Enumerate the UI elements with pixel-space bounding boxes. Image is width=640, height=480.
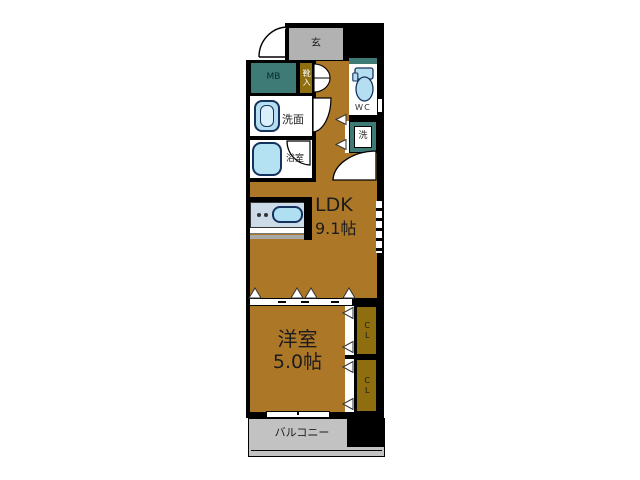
bathroom-label: 浴室 [286, 146, 304, 165]
floor-plan: 玄 MB 靴入 ＷＣ 洗 洗面 [0, 0, 640, 480]
washroom-label: 洗面 [282, 108, 304, 127]
partition-door-marker-icon [291, 288, 303, 298]
ldk-window [376, 201, 382, 253]
shoe-cabinet-door-icon [313, 62, 331, 94]
entrance-label: 玄 [311, 39, 321, 50]
kitchen-counter [250, 202, 306, 228]
counter-shadow [250, 235, 306, 239]
entrance-door-icon [257, 25, 289, 59]
balcony-label: バルコニー [252, 425, 352, 441]
meter-box-label: MB [267, 73, 281, 82]
toilet-icon [352, 66, 376, 104]
counter-edge [250, 228, 306, 234]
partition-door-marker-icon [305, 288, 317, 298]
balcony-window [266, 411, 330, 418]
kitchen-wall-right [304, 197, 312, 240]
entrance-room: 玄 [288, 27, 344, 61]
shoe-cabinet-label: 靴入 [302, 69, 310, 87]
laundry-door-marker-icon [336, 114, 347, 125]
western-room-size-label: 5.0帖 [250, 351, 345, 375]
closet-upper: CL [356, 306, 377, 355]
washroom-door-icon [312, 97, 332, 133]
closet-upper-label: CL [362, 321, 370, 341]
balcony-railing-line [251, 450, 382, 451]
kitchen-sink-icon [272, 206, 303, 223]
meter-box: MB [250, 62, 297, 94]
closet-lower-label: CL [362, 376, 370, 396]
western-room-label: 洋室 [250, 326, 345, 352]
partition-door-marker-icon [343, 288, 355, 298]
closet-door-marker-icon [343, 398, 354, 410]
bathtub-icon [252, 142, 282, 176]
stove-burner-icon [257, 213, 261, 217]
washing-machine-icon: 洗 [354, 126, 372, 148]
ldk-size-label: 9.1帖 [315, 219, 356, 238]
pillar [347, 416, 384, 447]
ldk-door-icon [331, 149, 377, 182]
sink-icon [254, 100, 280, 132]
shoe-cabinet: 靴入 [299, 62, 313, 94]
ldk-label: LDK [315, 196, 353, 216]
closet-door-marker-icon [343, 361, 354, 373]
closet-lower: CL [356, 359, 377, 412]
closet-door-marker-icon [343, 341, 354, 353]
partition-track [250, 298, 352, 306]
toilet-label: ＷＣ [349, 102, 377, 114]
stove-burner-icon [264, 213, 268, 217]
closet-door-marker-icon [343, 307, 354, 319]
partition-door-marker-icon [249, 288, 261, 298]
closet-door-strip [345, 306, 354, 412]
toilet-window [378, 99, 382, 112]
laundry-label: 洗 [358, 132, 367, 141]
